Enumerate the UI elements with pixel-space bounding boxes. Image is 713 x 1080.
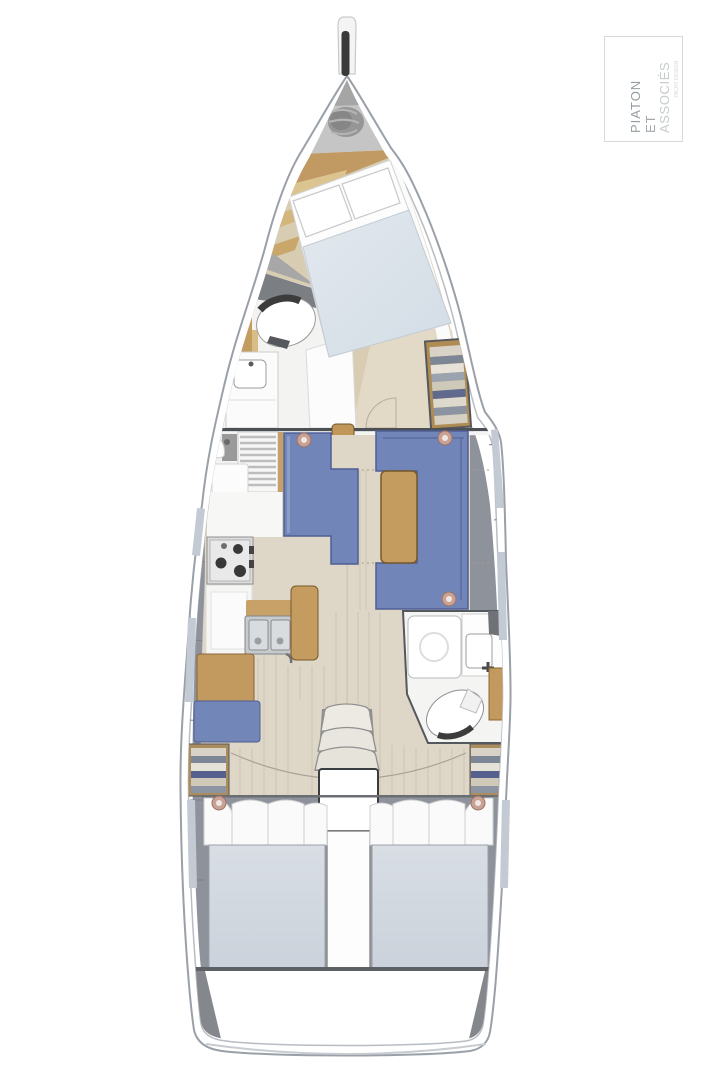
svg-text:YACHT DESIGN: YACHT DESIGN: [674, 61, 680, 98]
svg-text:PIATON: PIATON: [628, 80, 643, 133]
svg-text:ET: ET: [643, 114, 658, 133]
svg-text:ASSOCIÉS: ASSOCIÉS: [657, 62, 672, 133]
